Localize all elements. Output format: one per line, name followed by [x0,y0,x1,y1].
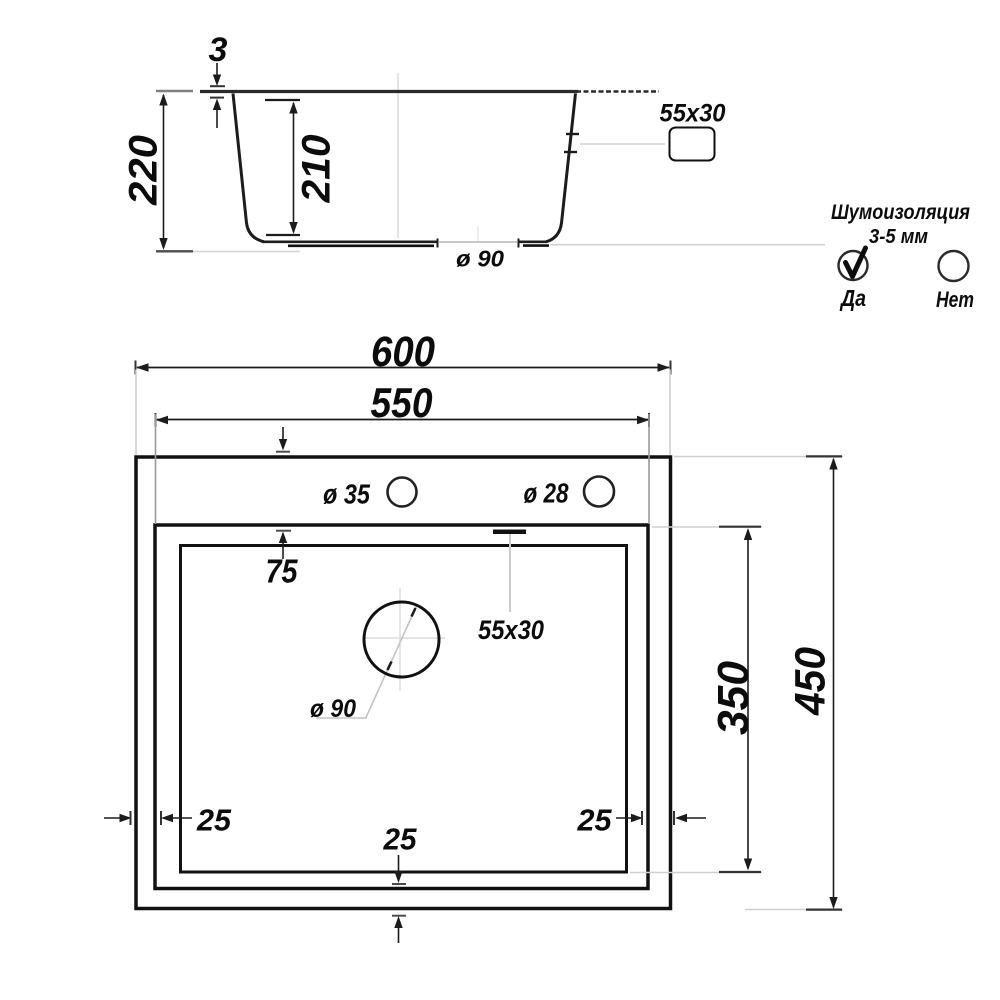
svg-text:3-5 мм: 3-5 мм [869,226,928,248]
svg-text:600: 600 [371,328,435,376]
svg-text:55x30: 55x30 [478,615,544,645]
svg-text:450: 450 [787,647,835,716]
svg-text:Нет: Нет [936,287,974,312]
svg-text:220: 220 [122,135,166,206]
svg-text:Шумоизоляция: Шумоизоляция [831,201,970,224]
svg-text:25: 25 [577,803,613,838]
svg-text:ø 90: ø 90 [310,695,356,723]
svg-text:25: 25 [383,822,418,857]
svg-text:350: 350 [709,660,758,735]
svg-text:Да: Да [839,285,866,311]
svg-text:ø 28: ø 28 [524,478,569,509]
svg-text:75: 75 [266,553,299,590]
svg-text:ø 35: ø 35 [323,479,370,510]
svg-text:ø 90: ø 90 [456,246,504,272]
svg-text:210: 210 [295,135,339,204]
svg-text:3: 3 [209,31,228,69]
svg-text:25: 25 [196,803,232,838]
svg-text:55x30: 55x30 [660,100,726,128]
